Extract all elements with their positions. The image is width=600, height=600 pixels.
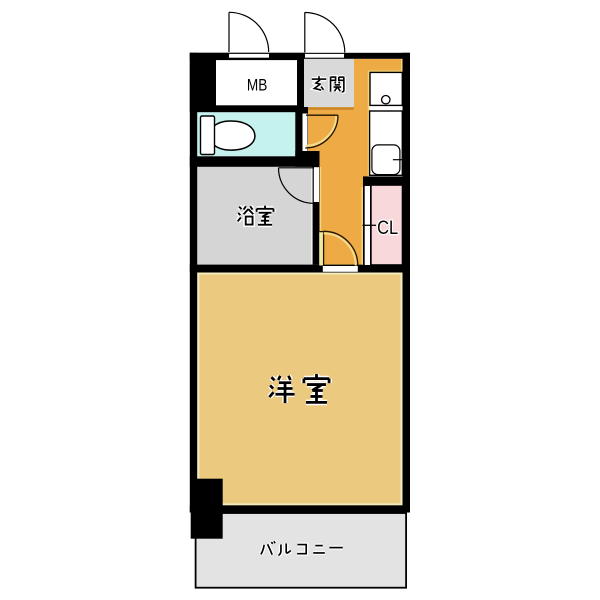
- svg-text:CL: CL: [377, 218, 398, 239]
- svg-text:MB: MB: [247, 77, 267, 95]
